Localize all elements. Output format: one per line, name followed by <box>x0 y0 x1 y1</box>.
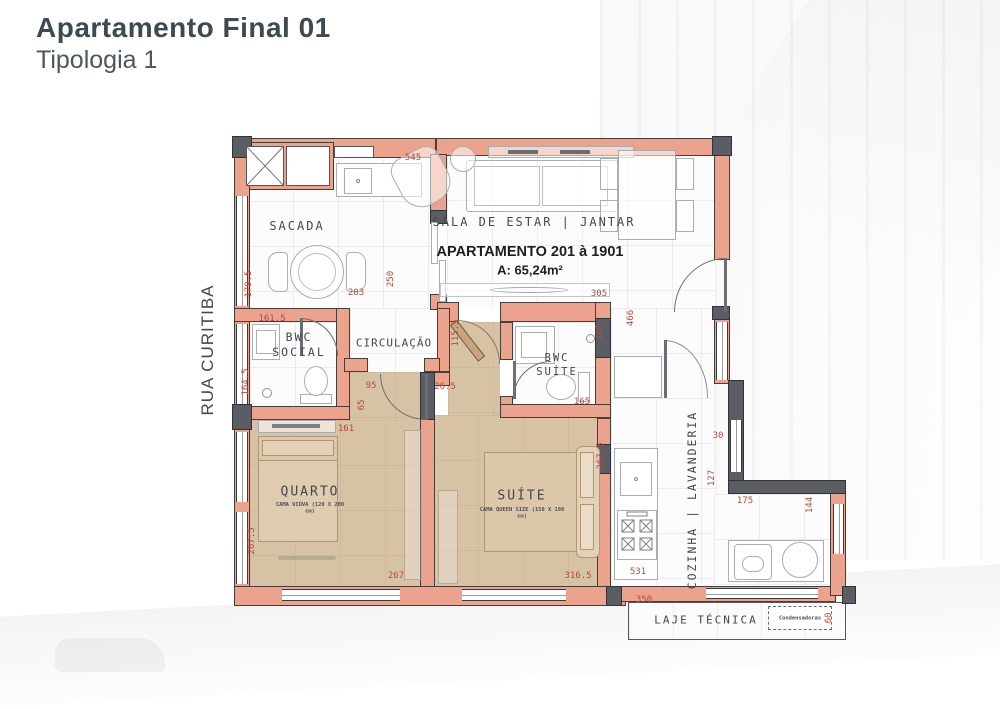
balcony-table-inner <box>298 253 336 291</box>
dresser-mark <box>272 424 320 428</box>
wall <box>714 154 730 260</box>
bathroom-sink <box>521 332 547 358</box>
window <box>236 432 248 502</box>
dimension-label: 65 <box>357 400 367 411</box>
dimension-label: 144 <box>805 497 815 513</box>
grill-sink-drain <box>356 179 360 183</box>
dimension-label: 115.5 <box>451 319 461 346</box>
bed-pillow <box>580 452 594 498</box>
column <box>712 136 732 156</box>
column <box>232 404 252 430</box>
dimension-label: 350 <box>636 595 652 605</box>
window <box>833 504 844 554</box>
window <box>730 420 742 472</box>
dimension-label: 267.5 <box>596 442 606 469</box>
wardrobe <box>438 490 458 584</box>
wall <box>234 308 350 322</box>
sofa-cushion <box>542 166 608 206</box>
dimension-label: 26.5 <box>434 382 456 392</box>
kitchen-cabinet <box>614 356 662 398</box>
window <box>716 322 728 380</box>
dimension-label: 267 <box>388 571 404 581</box>
stove-burners-icon <box>617 510 657 560</box>
shaft-box <box>286 146 330 186</box>
room-label-sacada: SACADA <box>269 219 324 233</box>
dining-chair <box>600 158 618 190</box>
side-table <box>450 146 476 172</box>
dining-chair <box>676 200 694 232</box>
column <box>728 480 846 494</box>
dimension-label: 203 <box>348 288 364 298</box>
dimension-label: 165 <box>595 324 605 340</box>
sofa-cushion <box>474 166 540 206</box>
tv-mark <box>508 150 538 154</box>
dining-chair <box>676 158 694 190</box>
dimension-label: 305 <box>591 289 607 299</box>
dimension-label: 60 <box>824 613 834 624</box>
dimension-label: 95 <box>366 381 377 391</box>
balcony-chair <box>346 252 366 292</box>
shower-head <box>262 388 272 398</box>
floor-plan: Condensadoras SACADA SALA DE ESTAR | JAN… <box>0 0 1000 704</box>
dimension-label: 545 <box>405 153 421 163</box>
room-label-circulacao: CIRCULAÇÃO <box>356 337 432 350</box>
fridge-door-leaf <box>664 340 667 398</box>
balcony-chair <box>268 252 288 292</box>
room-label-suite: SUÍTE <box>497 489 546 504</box>
bed-pillow <box>580 504 594 550</box>
room-label-bwc-social-2: SOCIAL <box>272 345 326 359</box>
bwc-suite-door-leaf <box>513 361 516 399</box>
condenser-label: Condensadoras <box>779 615 821 621</box>
dimension-label: 466 <box>626 310 636 326</box>
dimension-label: 175 <box>737 496 753 506</box>
window <box>282 589 400 601</box>
room-label-bwc-social-1: BWC <box>286 330 313 344</box>
room-label-quarto: QUARTO <box>281 485 340 500</box>
window <box>706 588 818 599</box>
quarto-door-leaf <box>425 374 428 420</box>
dimension-label: 179.5 <box>244 270 254 297</box>
room-label-bwc-suite-1: BWC <box>545 352 570 364</box>
entry-door-leaf <box>724 258 727 312</box>
wall-niche <box>334 146 374 158</box>
dimension-label: 161.5 <box>258 314 285 324</box>
dimension-label: 531 <box>630 567 646 577</box>
window <box>462 589 566 601</box>
shaft-x-icon <box>246 146 284 186</box>
washing-machine-door <box>742 556 764 572</box>
column <box>606 586 622 606</box>
rug <box>278 556 336 560</box>
wall <box>424 358 440 372</box>
bed-pillow <box>262 440 334 456</box>
sideboard-platter <box>490 287 568 293</box>
dimension-label: 127 <box>707 470 717 486</box>
page: { "header": { "title": "Apartamento Fina… <box>0 0 1000 704</box>
tv-mark <box>560 150 590 154</box>
dimension-label: 250 <box>386 271 396 287</box>
laundry-tub <box>782 542 818 578</box>
room-sublabel-suite-bed: CAMA QUEEN SIZE (158 X 198 cm) <box>477 507 567 520</box>
dimension-label: 267.5 <box>247 527 257 554</box>
room-sublabel-quarto-bed: CAMA VIÚVA (120 X 200 cm) <box>270 502 351 515</box>
wall <box>344 358 368 372</box>
room-label-sala: SALA DE ESTAR | JANTAR <box>433 215 636 229</box>
room-label-bwc-suite-2: SUÍTE <box>536 366 578 378</box>
unit-name: APARTAMENTO 201 à 1901 <box>437 244 624 260</box>
unit-area: A: 65,24m² <box>497 263 563 278</box>
shower-head <box>586 334 595 343</box>
column <box>842 586 856 604</box>
dimension-label: 30 <box>713 431 724 441</box>
wardrobe <box>404 430 422 580</box>
dimension-label: 164.5 <box>241 368 251 395</box>
room-label-cozinha: COZINHA | LAVANDERIA <box>685 411 699 589</box>
wall <box>420 418 435 588</box>
wall <box>500 404 611 418</box>
dimension-label: 316.5 <box>564 571 591 581</box>
dimension-label: 161 <box>338 424 354 434</box>
kitchen-sink-drain <box>634 477 638 481</box>
dimension-label: 165 <box>574 397 590 407</box>
wall <box>500 322 513 360</box>
room-label-laje: LAJE TÉCNICA <box>654 614 757 627</box>
toilet-bowl <box>304 366 328 396</box>
